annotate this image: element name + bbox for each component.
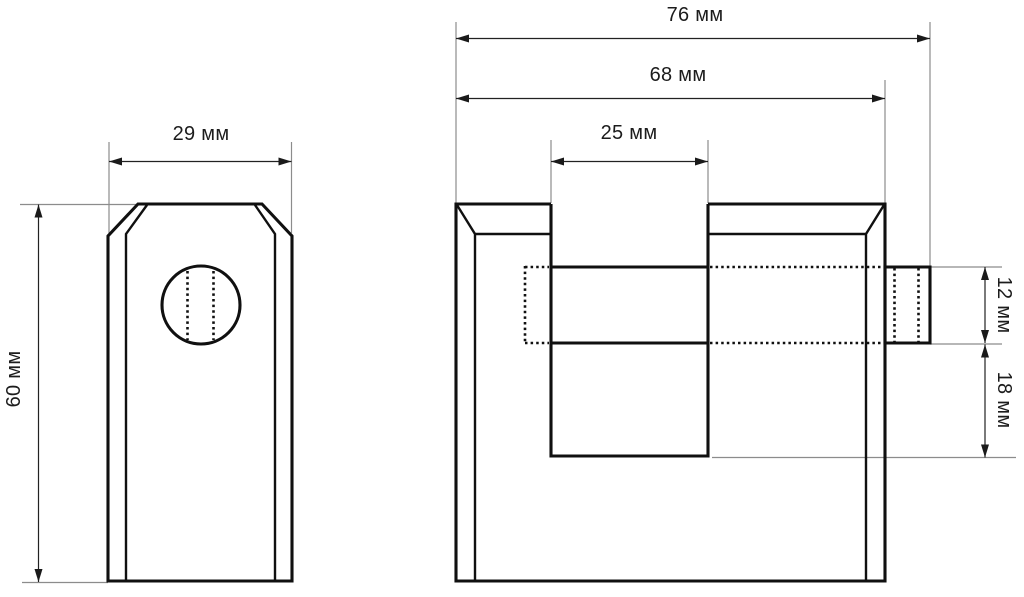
front-chamfer-right [708,205,884,581]
side-view [20,142,292,583]
dim-label-18mm: 18 мм [994,372,1014,429]
dim-label-60mm: 60 мм [4,351,24,408]
shackle-slot [551,204,708,456]
bolt-protrusion-hidden-edges [895,268,919,342]
technical-drawing: 29 мм 60 мм 76 мм 68 мм 25 мм 12 мм 18 м… [0,0,1024,597]
dim-label-76mm: 76 мм [667,5,724,25]
front-body-outline [456,203,885,581]
bolt-visible-edges [550,267,710,343]
bolt-hidden-left [525,266,549,344]
side-body-outline [108,204,292,581]
dim-label-25mm: 25 мм [601,123,658,143]
front-view [455,22,1017,581]
front-chamfer-left [457,205,551,581]
keyhole-circle [162,266,240,344]
side-inner-edge-left [126,205,147,581]
side-inner-edge-right [255,205,275,581]
dim-label-68mm: 68 мм [650,65,707,85]
bolt-protrusion [885,267,930,343]
dim-label-12mm: 12 мм [994,277,1014,334]
side-view-extension-lines [20,142,292,583]
dim-label-29mm: 29 мм [173,124,230,144]
drawing-canvas [0,0,1024,597]
bolt-hidden-right [710,267,884,343]
front-view-extension-lines [456,22,1016,458]
